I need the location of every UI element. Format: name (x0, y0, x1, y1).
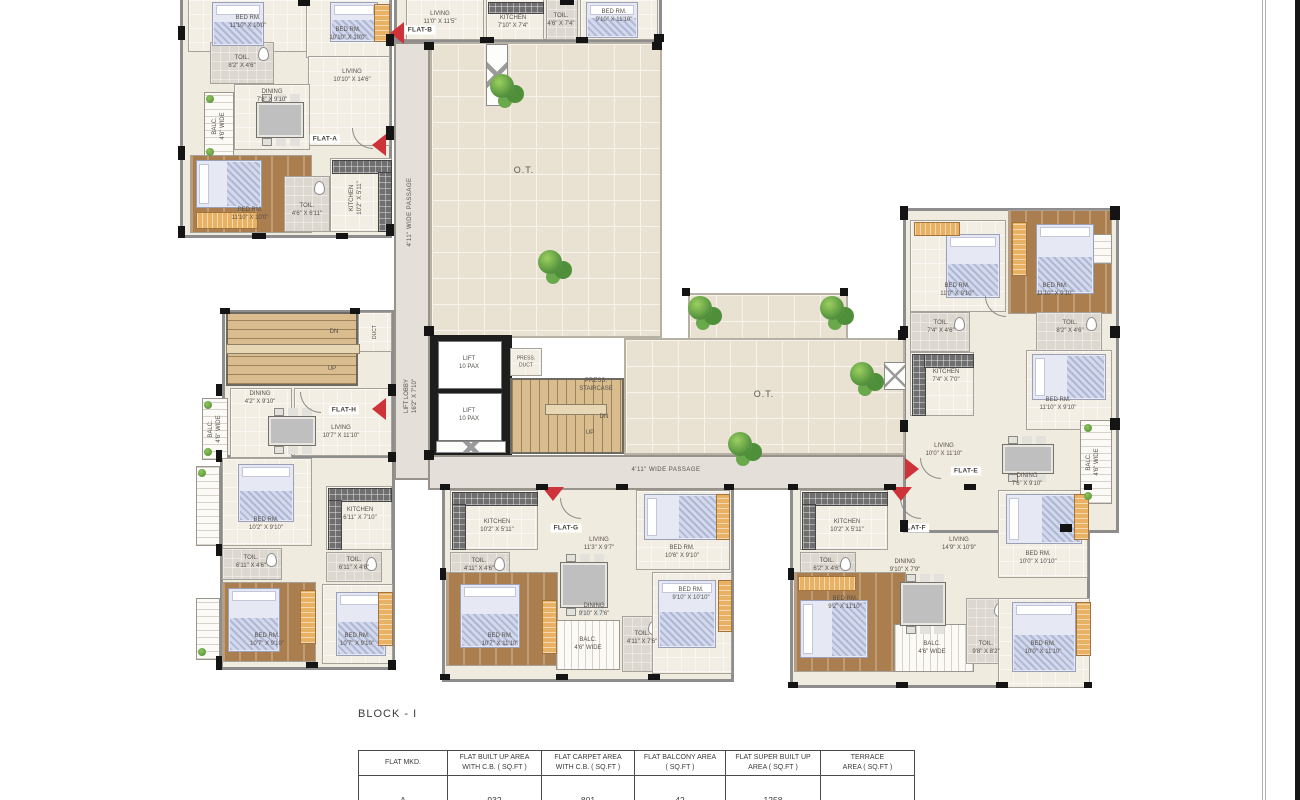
room-label: KITCHEN10'2" X 5'11" (348, 181, 364, 214)
room-label: KITCHEN7'10" X 7'4" (498, 14, 529, 30)
duct-label: DUCT (372, 325, 379, 339)
room-label: DINING4'2" X 9'10" (245, 390, 276, 406)
wardrobe (718, 580, 732, 632)
area-statement-table: FLAT MKD. FLAT BUILT UP AREA WITH C.B. (… (358, 750, 915, 800)
lift-lobby-label: LIFT LOBBY 16'2" X 7'10" (404, 379, 420, 413)
balcony (196, 466, 220, 546)
column (386, 126, 394, 140)
table-cell: - (821, 776, 915, 800)
bed (1032, 354, 1106, 400)
room-label: DINING9'10" X 7'9" (890, 558, 921, 574)
room-label: BED RM.10'2" X 9'10" (249, 516, 283, 532)
bed (1006, 494, 1082, 544)
entrance-arrow-flat-a (372, 134, 386, 156)
room-label: BED RM.10'10" X 10'0" (329, 26, 366, 42)
tree-icon (850, 362, 874, 386)
column (350, 308, 360, 314)
wardrobe (1074, 494, 1089, 540)
room-label: BED RM.10'7" X 9'10" (340, 632, 374, 648)
room-label: BALC.4'6" WIDE (918, 640, 945, 656)
table-cell: 932 (448, 776, 542, 800)
column (1110, 206, 1120, 220)
table-cell: 1258 (726, 776, 821, 800)
stair-landing (226, 344, 360, 354)
column (556, 674, 568, 680)
flat-b-tag: FLAT-B (405, 26, 435, 35)
column (788, 568, 794, 580)
table-cell: A (359, 776, 448, 800)
column (900, 520, 908, 532)
room-label: KITCHEN10'2" X 5'11" (480, 518, 513, 534)
column (298, 0, 310, 6)
column (388, 452, 396, 462)
column (480, 37, 494, 43)
room-label: BALC.4'6" WIDE (211, 112, 227, 139)
room-label: LIVING11'3" X 9'7" (584, 536, 614, 552)
table-row: A 932 801 42 1258 - (359, 776, 915, 800)
bed (644, 494, 718, 540)
column (178, 226, 185, 238)
column (178, 146, 185, 160)
room-label: BED RM.11'10" X 10'0" (232, 206, 269, 222)
room-label: KITCHEN10'2" X 5'11" (830, 518, 863, 534)
room-label: BED RM.9'10" X 10'10" (672, 586, 709, 602)
bed (196, 160, 262, 208)
plant-pot-icon (1084, 424, 1092, 432)
column (216, 384, 222, 396)
plant-pot-icon (206, 95, 214, 103)
kitchen-counter (802, 504, 816, 550)
column (576, 37, 588, 43)
stair-up-label: UP (586, 430, 594, 438)
column (424, 42, 434, 50)
column (724, 484, 734, 490)
column (424, 326, 434, 336)
flat-a-tag: FLAT-A (310, 135, 340, 144)
stair-landing (545, 404, 607, 415)
column (900, 326, 908, 338)
page-border-line (1265, 0, 1266, 800)
column (788, 484, 798, 490)
table-header-cell: FLAT BALCONY AREA ( SQ.FT ) (635, 751, 726, 776)
room-label: BED RM.11'10" X 9'10" (1040, 396, 1077, 412)
room-label: DINING9'10" X 7'6" (579, 602, 610, 618)
bed (1012, 602, 1076, 672)
dining-table (268, 416, 316, 446)
press-staircase-label: PRESS. STAIRCASE (579, 378, 613, 394)
column (386, 34, 394, 46)
tree-icon (538, 250, 562, 274)
room-label: LIVING14'9" X 10'9" (942, 536, 976, 552)
lift-2-label: LIFT 10 PAX (459, 408, 479, 424)
room-label: LIVING10'10" X 14'6" (333, 68, 370, 84)
room-label: BED RM.10'7" X 11'10" (482, 632, 519, 648)
flat-g-tag: FLAT-G (551, 524, 582, 533)
lift-1-label: LIFT 10 PAX (459, 356, 479, 372)
table-header-cell: FLAT CARPET AREA WITH C.B. ( SQ.FT ) (542, 751, 635, 776)
flat-e-tag: FLAT-E (951, 467, 981, 476)
entrance-arrow-flat-e (905, 458, 919, 480)
plant-pot-icon (198, 469, 206, 477)
room-label: TOIL.6'11" X 4'6" (339, 556, 369, 572)
room-label: TOIL.7'4" X 4'6" (927, 319, 954, 335)
wardrobe (914, 222, 960, 236)
room-label: TOIL.4'6" X 7'4" (547, 12, 574, 28)
room-label: TOIL.4'6" X 6'11" (292, 202, 322, 218)
table-header-row: FLAT MKD. FLAT BUILT UP AREA WITH C.B. (… (359, 751, 915, 776)
passage-label-vertical: 4'11" WIDE PASSAGE (407, 177, 415, 246)
column (1060, 524, 1072, 532)
passage-label-horizontal: 4'11" WIDE PASSAGE (631, 467, 700, 475)
column (652, 42, 662, 50)
room-label: LIVING10'7" X 11'10" (323, 424, 360, 440)
column (900, 420, 908, 432)
wardrobe (716, 494, 730, 540)
press-duct-label: PRESS. DUCT (517, 356, 535, 369)
table-cell: 42 (635, 776, 726, 800)
column (1084, 484, 1092, 490)
room-label: KITCHEN6'11" X 7'10" (343, 506, 376, 522)
plant-pot-icon (1084, 492, 1092, 500)
tree-icon (820, 296, 844, 320)
column (252, 233, 266, 239)
column (306, 662, 318, 668)
column (840, 288, 848, 296)
room-label: BED RM.10'7" X 9'10" (250, 632, 284, 648)
wardrobe (798, 576, 856, 591)
entrance-arrow-flat-h (372, 398, 386, 420)
room-label: TOIL.9'8" X 8'2" (972, 640, 999, 656)
room-label: BED RM.11'10" X 10'0" (230, 14, 267, 30)
column (1110, 418, 1120, 430)
column (178, 26, 185, 40)
column (560, 0, 574, 5)
column (896, 682, 908, 688)
plant-pot-icon (204, 448, 212, 456)
column (900, 206, 908, 220)
plant-pot-icon (198, 648, 206, 656)
plant-pot-icon (204, 401, 212, 409)
open-terrace-label: O.T. (754, 389, 775, 399)
column (388, 660, 396, 670)
duct-hatch (884, 362, 906, 390)
page-edge-strip (1295, 0, 1300, 800)
room-label: TOIL.8'2" X 4'6" (228, 54, 255, 70)
flat-h-tag: FLAT-H (329, 406, 359, 415)
vertical-passage (394, 42, 430, 480)
room-label: LIVING11'0" X 11'5" (423, 10, 456, 26)
column (440, 568, 446, 580)
table-header-cell: FLAT MKD. (359, 751, 448, 776)
page-border-line (1262, 0, 1263, 800)
column (440, 484, 450, 490)
room-label: BALC.4'6" WIDE (1085, 448, 1101, 475)
column (440, 674, 450, 680)
room-label: BED RM.11'10" X 9'10" (1037, 282, 1074, 298)
tree-icon (490, 74, 514, 98)
column (884, 484, 896, 490)
room-label: KITCHEN7'4" X 7'0" (932, 368, 959, 384)
column (788, 682, 798, 688)
column (216, 450, 222, 462)
tree-icon (688, 296, 712, 320)
block-title: BLOCK - I (358, 708, 417, 720)
column (996, 682, 1008, 688)
column (682, 288, 690, 296)
column (1084, 682, 1092, 688)
column (616, 484, 628, 490)
room-label: BED RM.9'10" X 11'10" (596, 8, 633, 24)
dining-table (256, 102, 304, 138)
column (424, 450, 434, 460)
tree-icon (728, 432, 752, 456)
plant-pot-icon (206, 148, 214, 156)
column (648, 674, 660, 680)
lift-pit-hatch (436, 441, 506, 453)
table-header-cell: TERRACE AREA ( SQ.FT ) (821, 751, 915, 776)
wardrobe (1012, 222, 1027, 276)
dining-table (900, 582, 946, 626)
central-open-terrace (430, 42, 662, 338)
column (220, 308, 230, 314)
table-header-cell: FLAT BUILT UP AREA WITH C.B. ( SQ.FT ) (448, 751, 542, 776)
open-terrace-label: O.T. (514, 165, 535, 175)
wardrobe (378, 592, 393, 646)
room-label: DINING7'8" X 9'10" (257, 88, 288, 104)
column (388, 384, 396, 396)
wardrobe (300, 590, 316, 644)
kitchen-counter (488, 2, 544, 14)
table-header-cell: FLAT SUPER BUILT UP AREA ( SQ.FT ) (726, 751, 821, 776)
column (386, 224, 394, 236)
column (964, 484, 976, 490)
room-label: TOIL.6'2" X 4'6" (813, 557, 840, 573)
column (654, 34, 664, 42)
stair-dn-label: DN (600, 414, 609, 422)
stair-up-label: UP (328, 366, 336, 374)
table-cell: 801 (542, 776, 635, 800)
column (216, 544, 222, 556)
room-label: LIVING10'0" X 11'10" (926, 442, 963, 458)
kitchen-counter (452, 504, 466, 550)
column (336, 233, 348, 239)
bed (238, 464, 294, 522)
column (216, 656, 222, 670)
room-label: BALC.4'6" WIDE (574, 636, 601, 652)
room-label: TOIL.8'2" X 4'6" (1056, 319, 1083, 335)
stair-dn-label: DN (330, 329, 339, 337)
dining-table (1002, 444, 1054, 474)
wardrobe (1076, 602, 1091, 656)
column (536, 484, 548, 490)
room-label: BED RM.11'0" X 9'10" (940, 282, 973, 298)
room-label: BALC.4'6" WIDE (207, 415, 223, 442)
kitchen-counter (328, 500, 342, 550)
room-label: TOIL.4'11" X 4'6" (464, 557, 494, 573)
wardrobe (542, 600, 557, 654)
room-label: DINING7'6" X 9'10" (1012, 472, 1043, 488)
room-label: BED RM.10'6" X 9'10" (665, 544, 699, 560)
kitchen-counter (924, 354, 974, 368)
kitchen-counter (378, 172, 392, 232)
room-label: BED RM.9'2" X 11'10" (828, 595, 861, 611)
room-label: BED RM.10'0" X 10'10" (1019, 550, 1056, 566)
room-label: TOIL.6'11" X 4'6" (236, 554, 266, 570)
floor-plan-page: BED RM.11'10" X 10'0" BED RM.10'10" X 10… (0, 0, 1300, 800)
room-label: TOIL.4'11" X 7'6" (627, 630, 657, 646)
room-label: BED RM.10'0" X 11'10" (1025, 640, 1062, 656)
column (1110, 326, 1120, 338)
